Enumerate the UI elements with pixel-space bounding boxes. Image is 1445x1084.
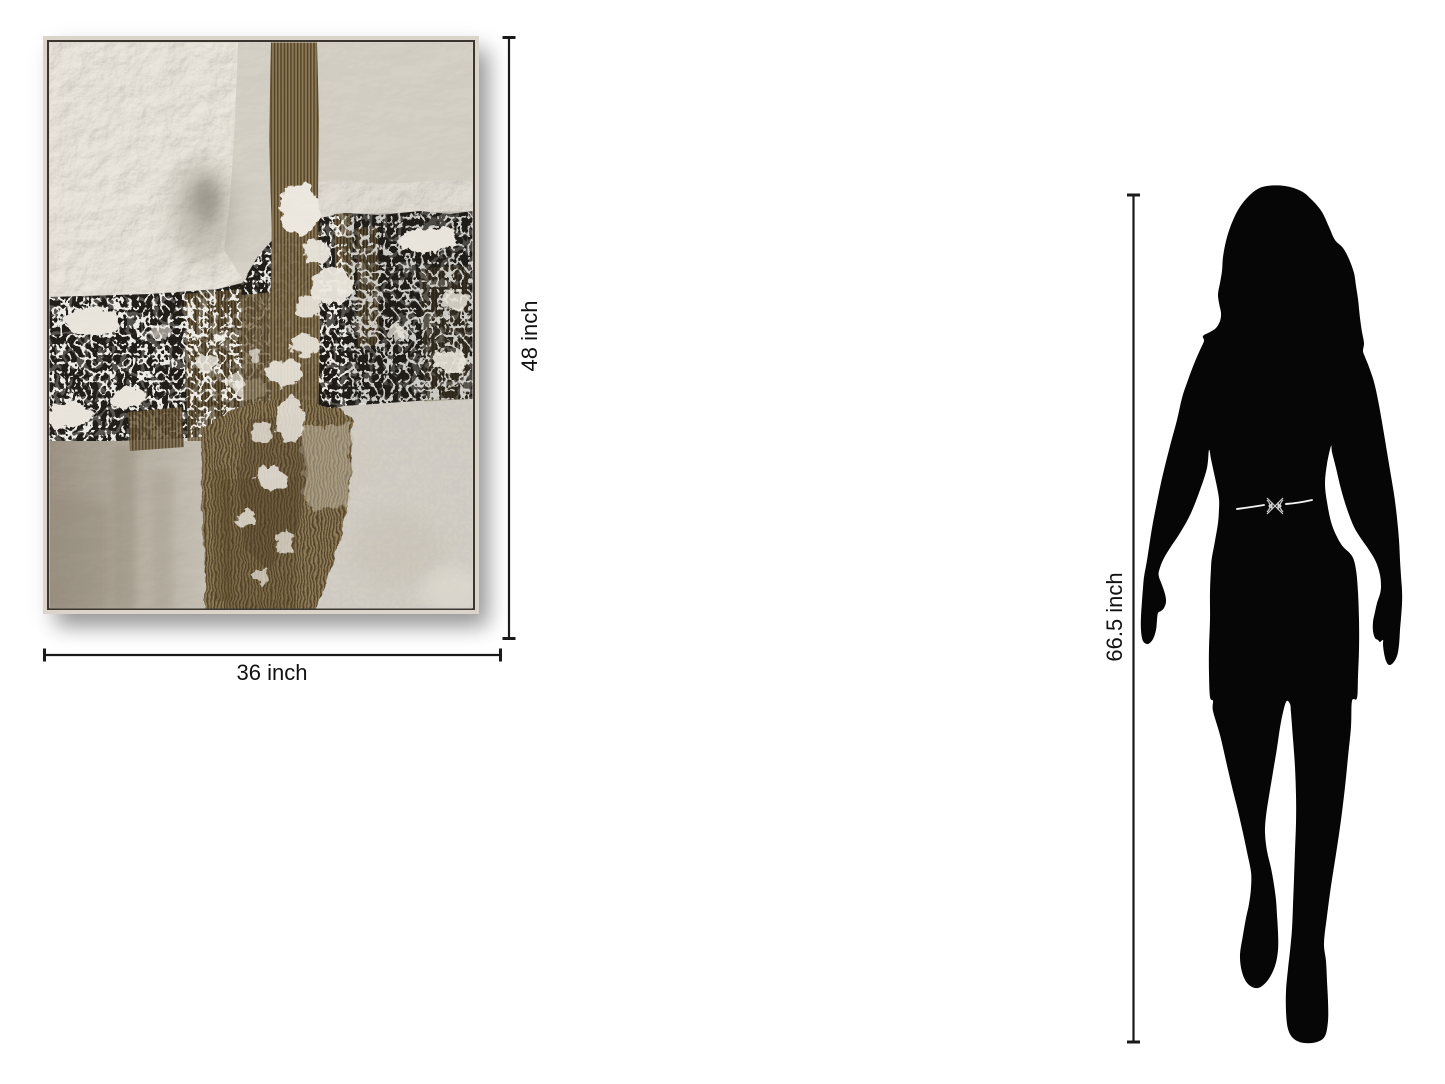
- svg-text:48 inch: 48 inch: [517, 301, 542, 372]
- svg-text:66.5 inch: 66.5 inch: [1102, 572, 1127, 661]
- svg-text:36 inch: 36 inch: [237, 660, 308, 685]
